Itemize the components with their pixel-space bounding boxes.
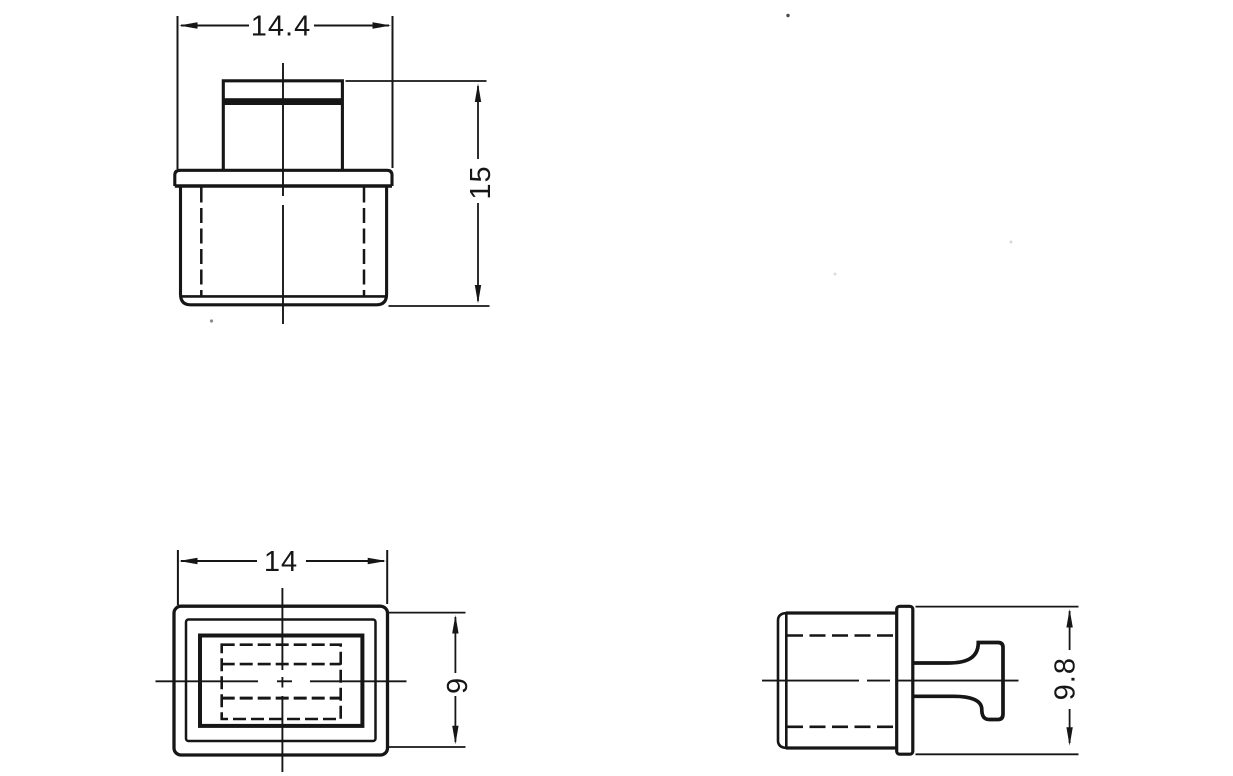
svg-text:9: 9	[442, 677, 474, 694]
svg-text:14.4: 14.4	[251, 11, 311, 43]
svg-text:15: 15	[465, 165, 497, 199]
svg-text:14: 14	[264, 546, 298, 578]
svg-text:9.8: 9.8	[1050, 657, 1082, 700]
